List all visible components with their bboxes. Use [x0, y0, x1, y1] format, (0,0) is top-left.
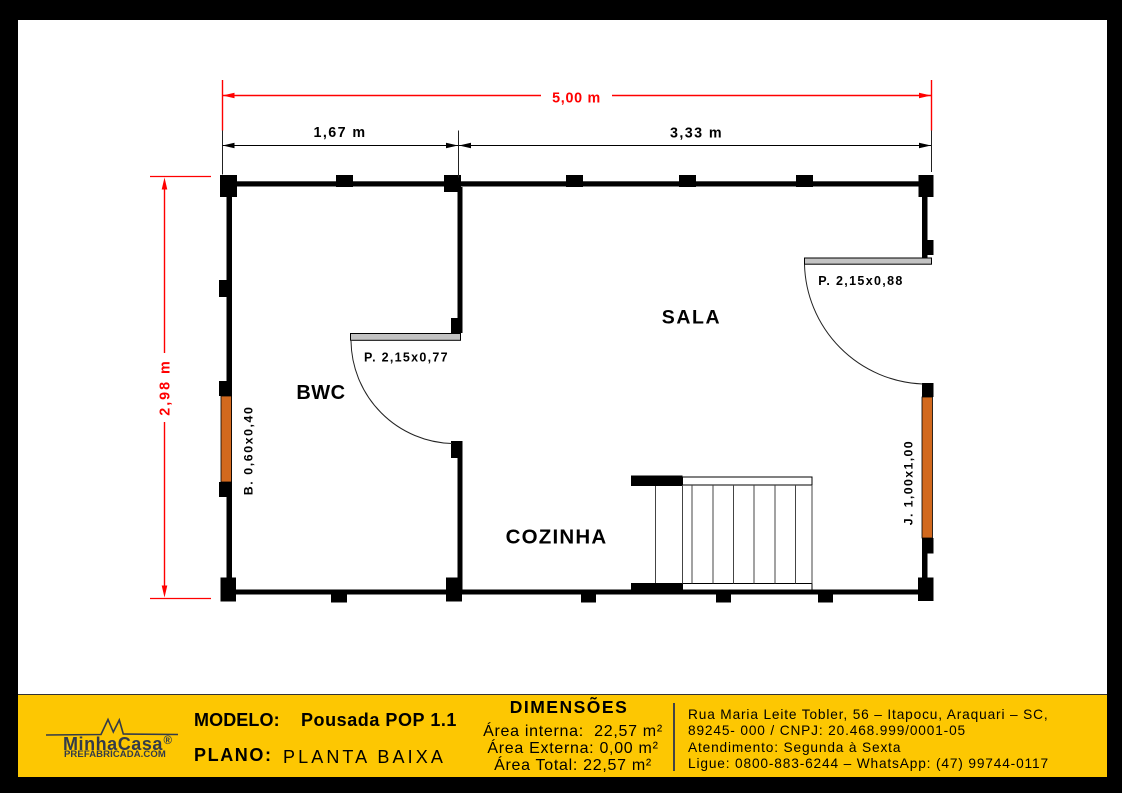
svg-text:BWC: BWC: [296, 382, 345, 404]
svg-text:SALA: SALA: [662, 307, 721, 329]
svg-text:3,33 m: 3,33 m: [670, 126, 723, 142]
svg-text:1,67 m: 1,67 m: [314, 125, 367, 141]
svg-text:P. 2,15x0,77: P. 2,15x0,77: [364, 351, 449, 365]
svg-text:B. 0,60x0,40: B. 0,60x0,40: [241, 406, 255, 496]
svg-text:P. 2,15x0,88: P. 2,15x0,88: [818, 274, 903, 288]
svg-text:2,98 m: 2,98 m: [158, 359, 174, 416]
svg-text:J. 1,00x1,00: J. 1,00x1,00: [901, 440, 915, 525]
svg-text:5,00 m: 5,00 m: [552, 91, 601, 107]
svg-text:COZINHA: COZINHA: [506, 526, 608, 549]
